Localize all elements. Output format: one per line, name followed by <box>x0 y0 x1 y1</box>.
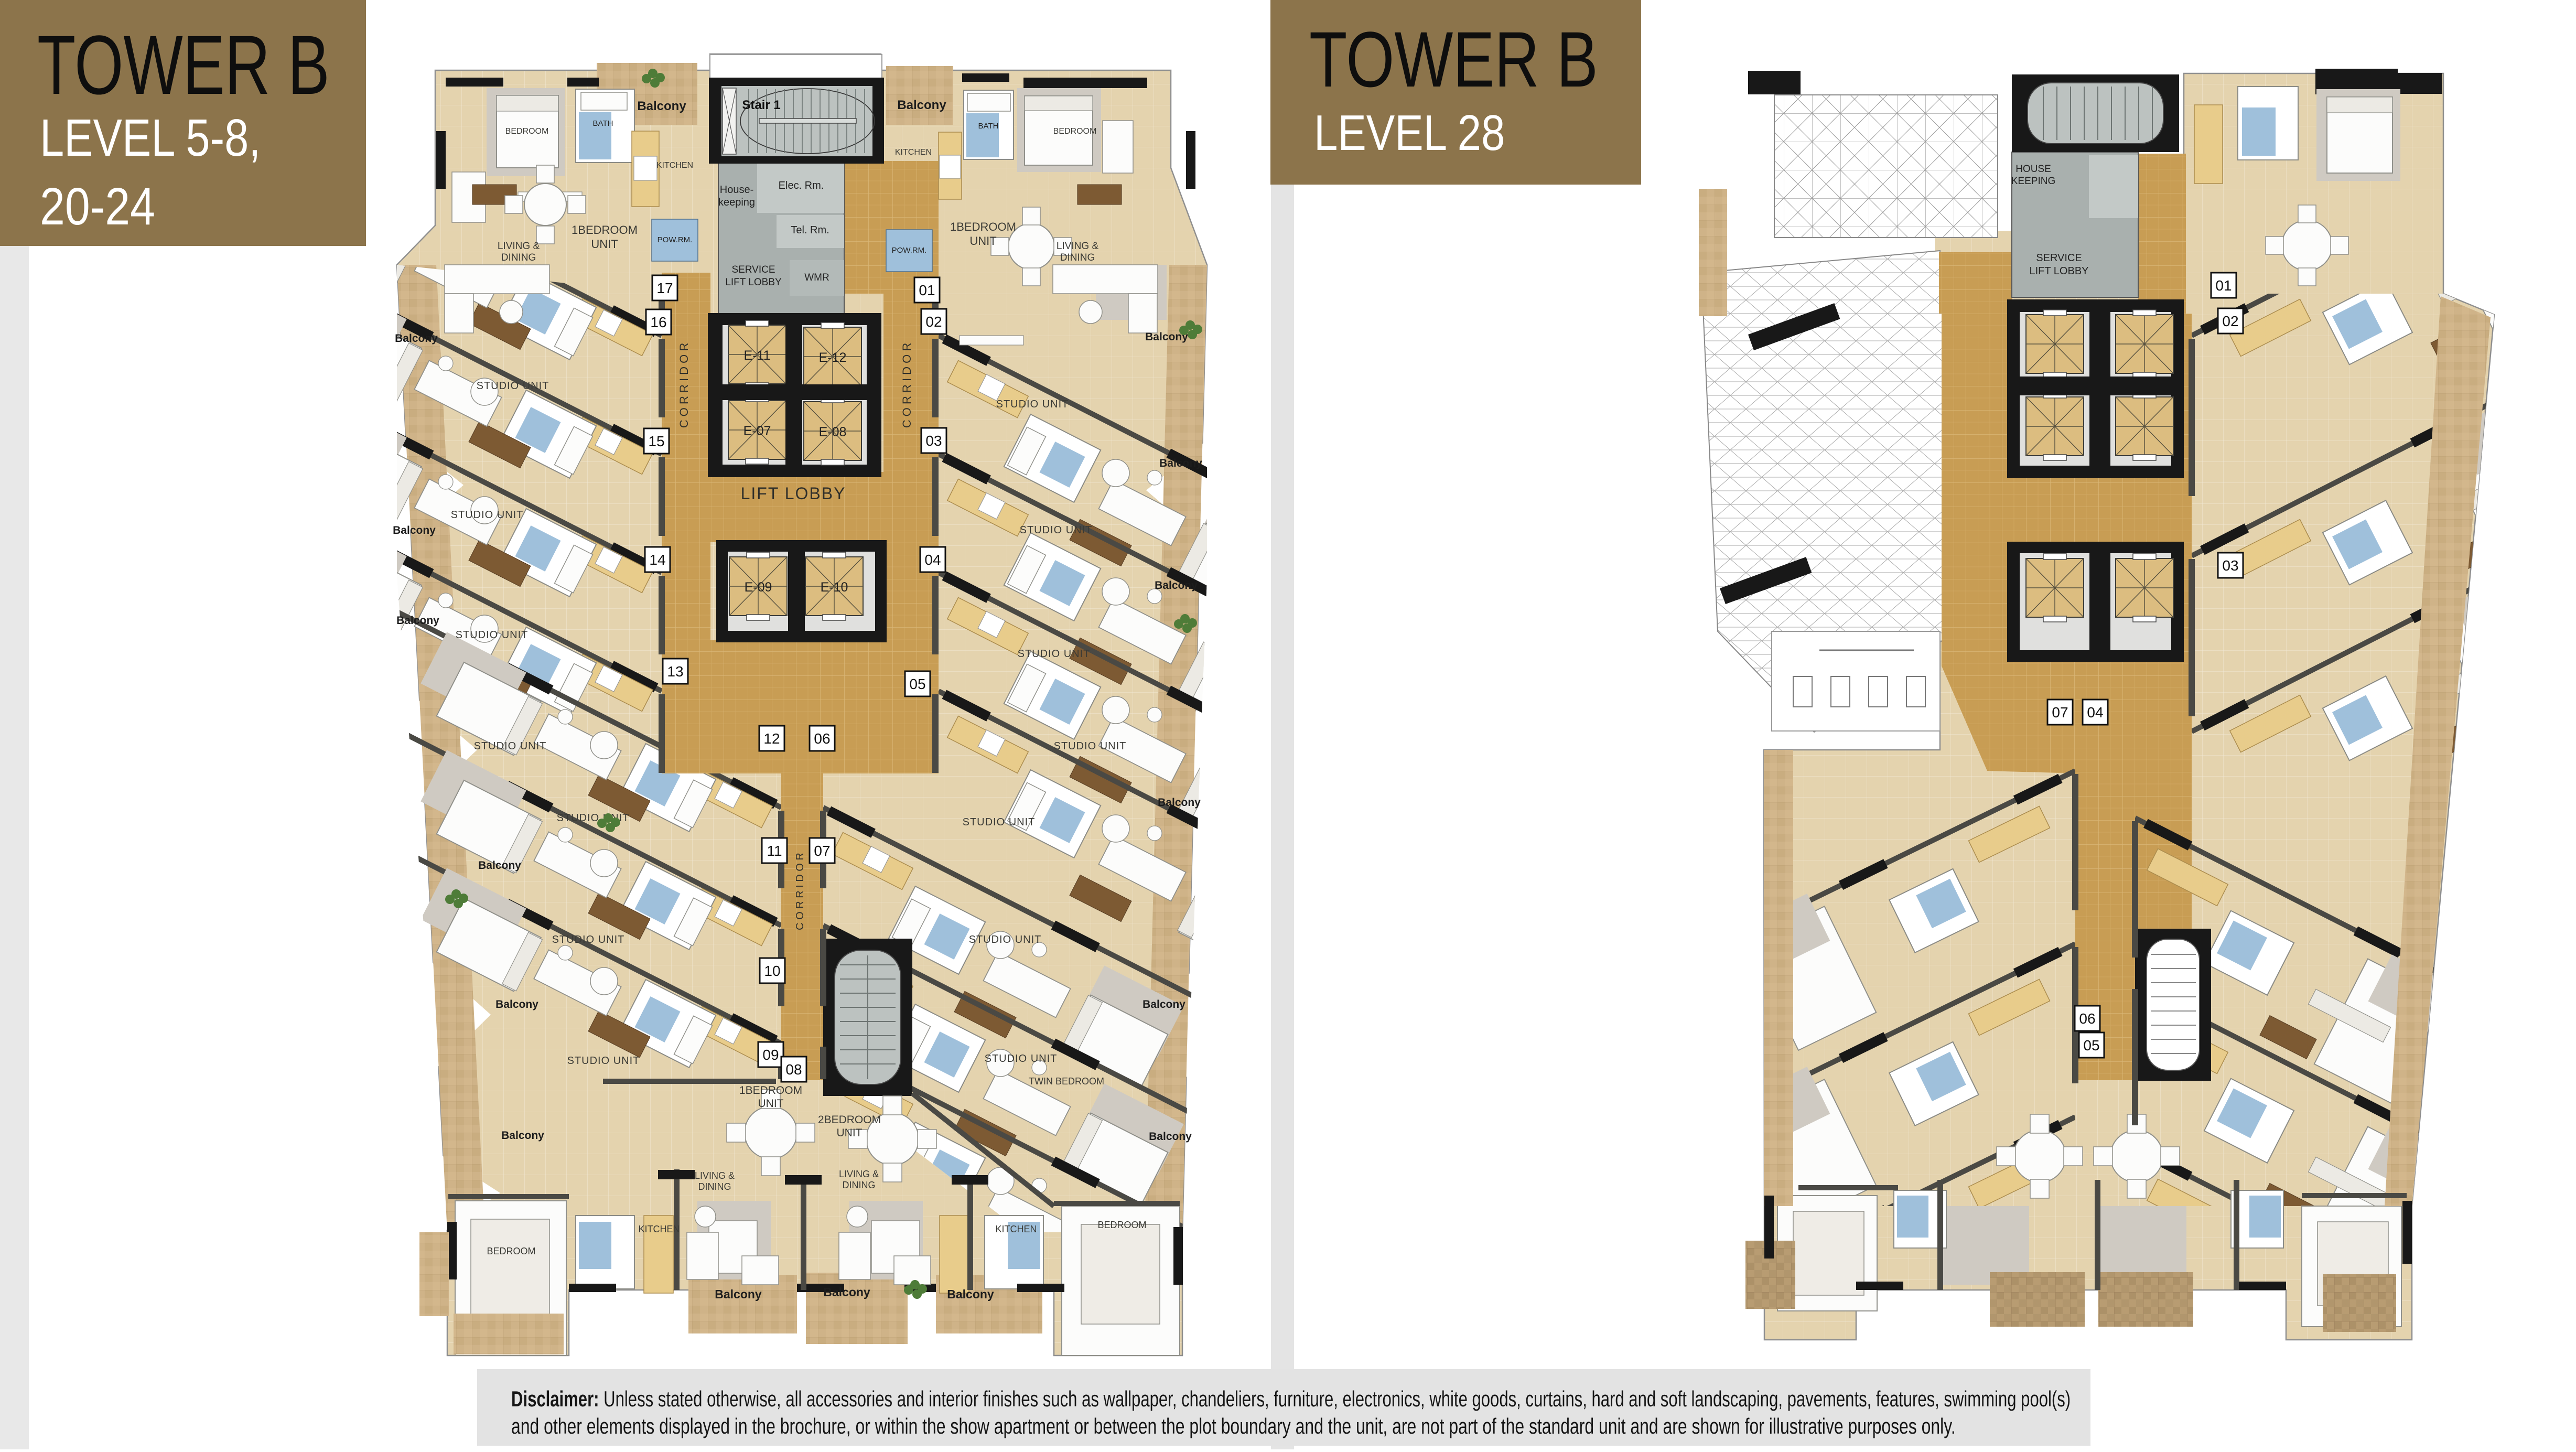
svg-text:STUDIO UNIT: STUDIO UNIT <box>969 934 1042 945</box>
svg-text:LIVING &: LIVING & <box>695 1170 735 1181</box>
svg-text:Stair 1: Stair 1 <box>742 98 780 112</box>
svg-text:Balcony: Balcony <box>393 524 436 536</box>
svg-text:1BEDROOM: 1BEDROOM <box>950 220 1016 233</box>
svg-text:16: 16 <box>650 314 666 330</box>
svg-text:02: 02 <box>925 314 942 330</box>
svg-text:01: 01 <box>919 282 935 298</box>
svg-text:KITCHEN: KITCHEN <box>995 1224 1037 1234</box>
svg-text:WMR: WMR <box>804 272 829 283</box>
svg-text:E-11: E-11 <box>744 348 771 363</box>
svg-text:STUDIO UNIT: STUDIO UNIT <box>552 934 625 945</box>
svg-text:Balcony: Balcony <box>495 998 538 1010</box>
svg-text:E-09: E-09 <box>745 580 772 595</box>
svg-text:01: 01 <box>2215 277 2232 294</box>
svg-text:Balcony: Balcony <box>395 332 438 345</box>
svg-text:KITCHEN: KITCHEN <box>638 1224 680 1234</box>
svg-text:Tel. Rm.: Tel. Rm. <box>791 224 829 236</box>
svg-text:Balcony: Balcony <box>1159 457 1202 469</box>
svg-text:HOUSE: HOUSE <box>2015 164 2051 175</box>
svg-text:House-: House- <box>720 184 753 196</box>
svg-text:Balcony: Balcony <box>478 859 521 872</box>
svg-text:LIFT LOBBY: LIFT LOBBY <box>2029 265 2088 277</box>
svg-text:10: 10 <box>764 963 780 979</box>
svg-text:Balcony: Balcony <box>1158 797 1201 809</box>
svg-text:STUDIO UNIT: STUDIO UNIT <box>1054 740 1127 752</box>
svg-text:Balcony: Balcony <box>1155 579 1198 591</box>
svg-text:LIVING &: LIVING & <box>839 1169 879 1179</box>
svg-text:08: 08 <box>785 1061 802 1078</box>
svg-text:BATH: BATH <box>978 122 999 131</box>
svg-text:Balcony: Balcony <box>947 1287 994 1301</box>
svg-text:15: 15 <box>648 433 664 449</box>
svg-text:11: 11 <box>767 843 782 859</box>
svg-text:STUDIO UNIT: STUDIO UNIT <box>985 1053 1058 1064</box>
svg-text:STUDIO UNIT: STUDIO UNIT <box>963 816 1036 828</box>
svg-text:SERVICE: SERVICE <box>2036 252 2082 264</box>
svg-text:DINING: DINING <box>501 252 536 263</box>
svg-text:07: 07 <box>814 843 830 859</box>
svg-text:04: 04 <box>2087 704 2103 720</box>
svg-text:E-10: E-10 <box>821 580 848 595</box>
svg-text:BEDROOM: BEDROOM <box>487 1246 535 1256</box>
svg-text:POW.RM.: POW.RM. <box>892 246 927 255</box>
svg-text:Balcony: Balcony <box>1149 1131 1192 1143</box>
svg-text:09: 09 <box>762 1047 779 1063</box>
svg-text:E-08: E-08 <box>819 425 847 439</box>
svg-text:DINING: DINING <box>698 1181 731 1192</box>
svg-text:LIFT LOBBY: LIFT LOBBY <box>741 484 846 503</box>
svg-text:STUDIO UNIT: STUDIO UNIT <box>1020 524 1093 536</box>
svg-text:LIVING &: LIVING & <box>1057 241 1099 252</box>
svg-text:LEVEL 28: LEVEL 28 <box>1314 104 1505 161</box>
svg-text:1BEDROOM: 1BEDROOM <box>739 1084 802 1096</box>
svg-text:04: 04 <box>924 552 941 568</box>
svg-text:KITCHEN: KITCHEN <box>895 148 932 157</box>
svg-text:07: 07 <box>2052 704 2068 720</box>
svg-text:DINING: DINING <box>843 1180 876 1190</box>
svg-text:Balcony: Balcony <box>501 1130 544 1142</box>
svg-text:TWIN BEDROOM: TWIN BEDROOM <box>1029 1076 1104 1087</box>
svg-text:LIVING &: LIVING & <box>498 241 540 252</box>
svg-text:STUDIO UNIT: STUDIO UNIT <box>474 740 547 752</box>
svg-text:17: 17 <box>656 280 673 296</box>
svg-text:SERVICE: SERVICE <box>731 264 775 275</box>
svg-text:KEEPING: KEEPING <box>2011 176 2055 187</box>
svg-text:TOWER B: TOWER B <box>1309 16 1598 104</box>
svg-text:Balcony: Balcony <box>823 1285 870 1299</box>
svg-text:BATH: BATH <box>593 119 613 128</box>
svg-text:Balcony: Balcony <box>715 1287 762 1301</box>
svg-text:12: 12 <box>763 730 780 747</box>
svg-text:14: 14 <box>649 552 665 568</box>
svg-text:STUDIO UNIT: STUDIO UNIT <box>477 380 549 392</box>
svg-text:05: 05 <box>909 676 925 692</box>
svg-text:Disclaimer: Unless stated othe: Disclaimer: Unless stated otherwise, all… <box>511 1386 2071 1411</box>
svg-text:05: 05 <box>2083 1037 2099 1053</box>
svg-text:2BEDROOM: 2BEDROOM <box>818 1114 881 1126</box>
svg-text:BEDROOM: BEDROOM <box>505 127 549 136</box>
svg-text:Balcony: Balcony <box>637 99 686 113</box>
svg-text:LIFT LOBBY: LIFT LOBBY <box>725 277 782 288</box>
svg-text:02: 02 <box>2222 313 2238 329</box>
svg-text:Elec. Rm.: Elec. Rm. <box>779 180 824 191</box>
svg-text:UNIT: UNIT <box>969 234 996 248</box>
svg-text:03: 03 <box>925 433 942 449</box>
svg-text:POW.RM.: POW.RM. <box>658 235 693 244</box>
svg-text:STUDIO UNIT: STUDIO UNIT <box>456 629 529 641</box>
svg-text:STUDIO UNIT: STUDIO UNIT <box>1018 648 1091 660</box>
svg-text:E-12: E-12 <box>819 350 847 365</box>
svg-text:Balcony: Balcony <box>897 98 946 112</box>
svg-text:TOWER B: TOWER B <box>37 18 330 112</box>
svg-text:1BEDROOM: 1BEDROOM <box>572 223 638 236</box>
svg-text:C O R R I D O R: C O R R I D O R <box>677 343 691 428</box>
svg-text:03: 03 <box>2222 557 2238 574</box>
svg-text:UNIT: UNIT <box>591 238 618 251</box>
svg-text:BEDROOM: BEDROOM <box>1053 127 1097 136</box>
svg-text:Balcony: Balcony <box>396 615 439 627</box>
svg-text:06: 06 <box>2079 1010 2095 1027</box>
svg-text:STUDIO UNIT: STUDIO UNIT <box>567 1055 640 1067</box>
svg-text:13: 13 <box>667 663 683 680</box>
svg-text:KITCHEN: KITCHEN <box>656 161 693 170</box>
svg-text:UNIT: UNIT <box>837 1127 863 1139</box>
svg-text:06: 06 <box>814 730 830 747</box>
svg-text:Balcony: Balcony <box>1143 998 1185 1010</box>
svg-text:20-24: 20-24 <box>40 177 155 236</box>
svg-text:DINING: DINING <box>1060 252 1095 263</box>
svg-text:keeping: keeping <box>718 197 755 208</box>
svg-text:STUDIO UNIT: STUDIO UNIT <box>451 509 524 521</box>
svg-text:and other elements displayed i: and other elements displayed in the broc… <box>511 1414 1956 1438</box>
svg-text:BEDROOM: BEDROOM <box>1097 1220 1146 1230</box>
svg-text:C O R R I D O R: C O R R I D O R <box>900 343 913 428</box>
svg-text:LEVEL 5-8,: LEVEL 5-8, <box>40 109 261 167</box>
svg-text:E-07: E-07 <box>743 424 771 438</box>
svg-text:C O R R I D O R: C O R R I D O R <box>794 853 806 930</box>
svg-text:STUDIO UNIT: STUDIO UNIT <box>996 399 1069 410</box>
svg-text:UNIT: UNIT <box>758 1098 784 1110</box>
